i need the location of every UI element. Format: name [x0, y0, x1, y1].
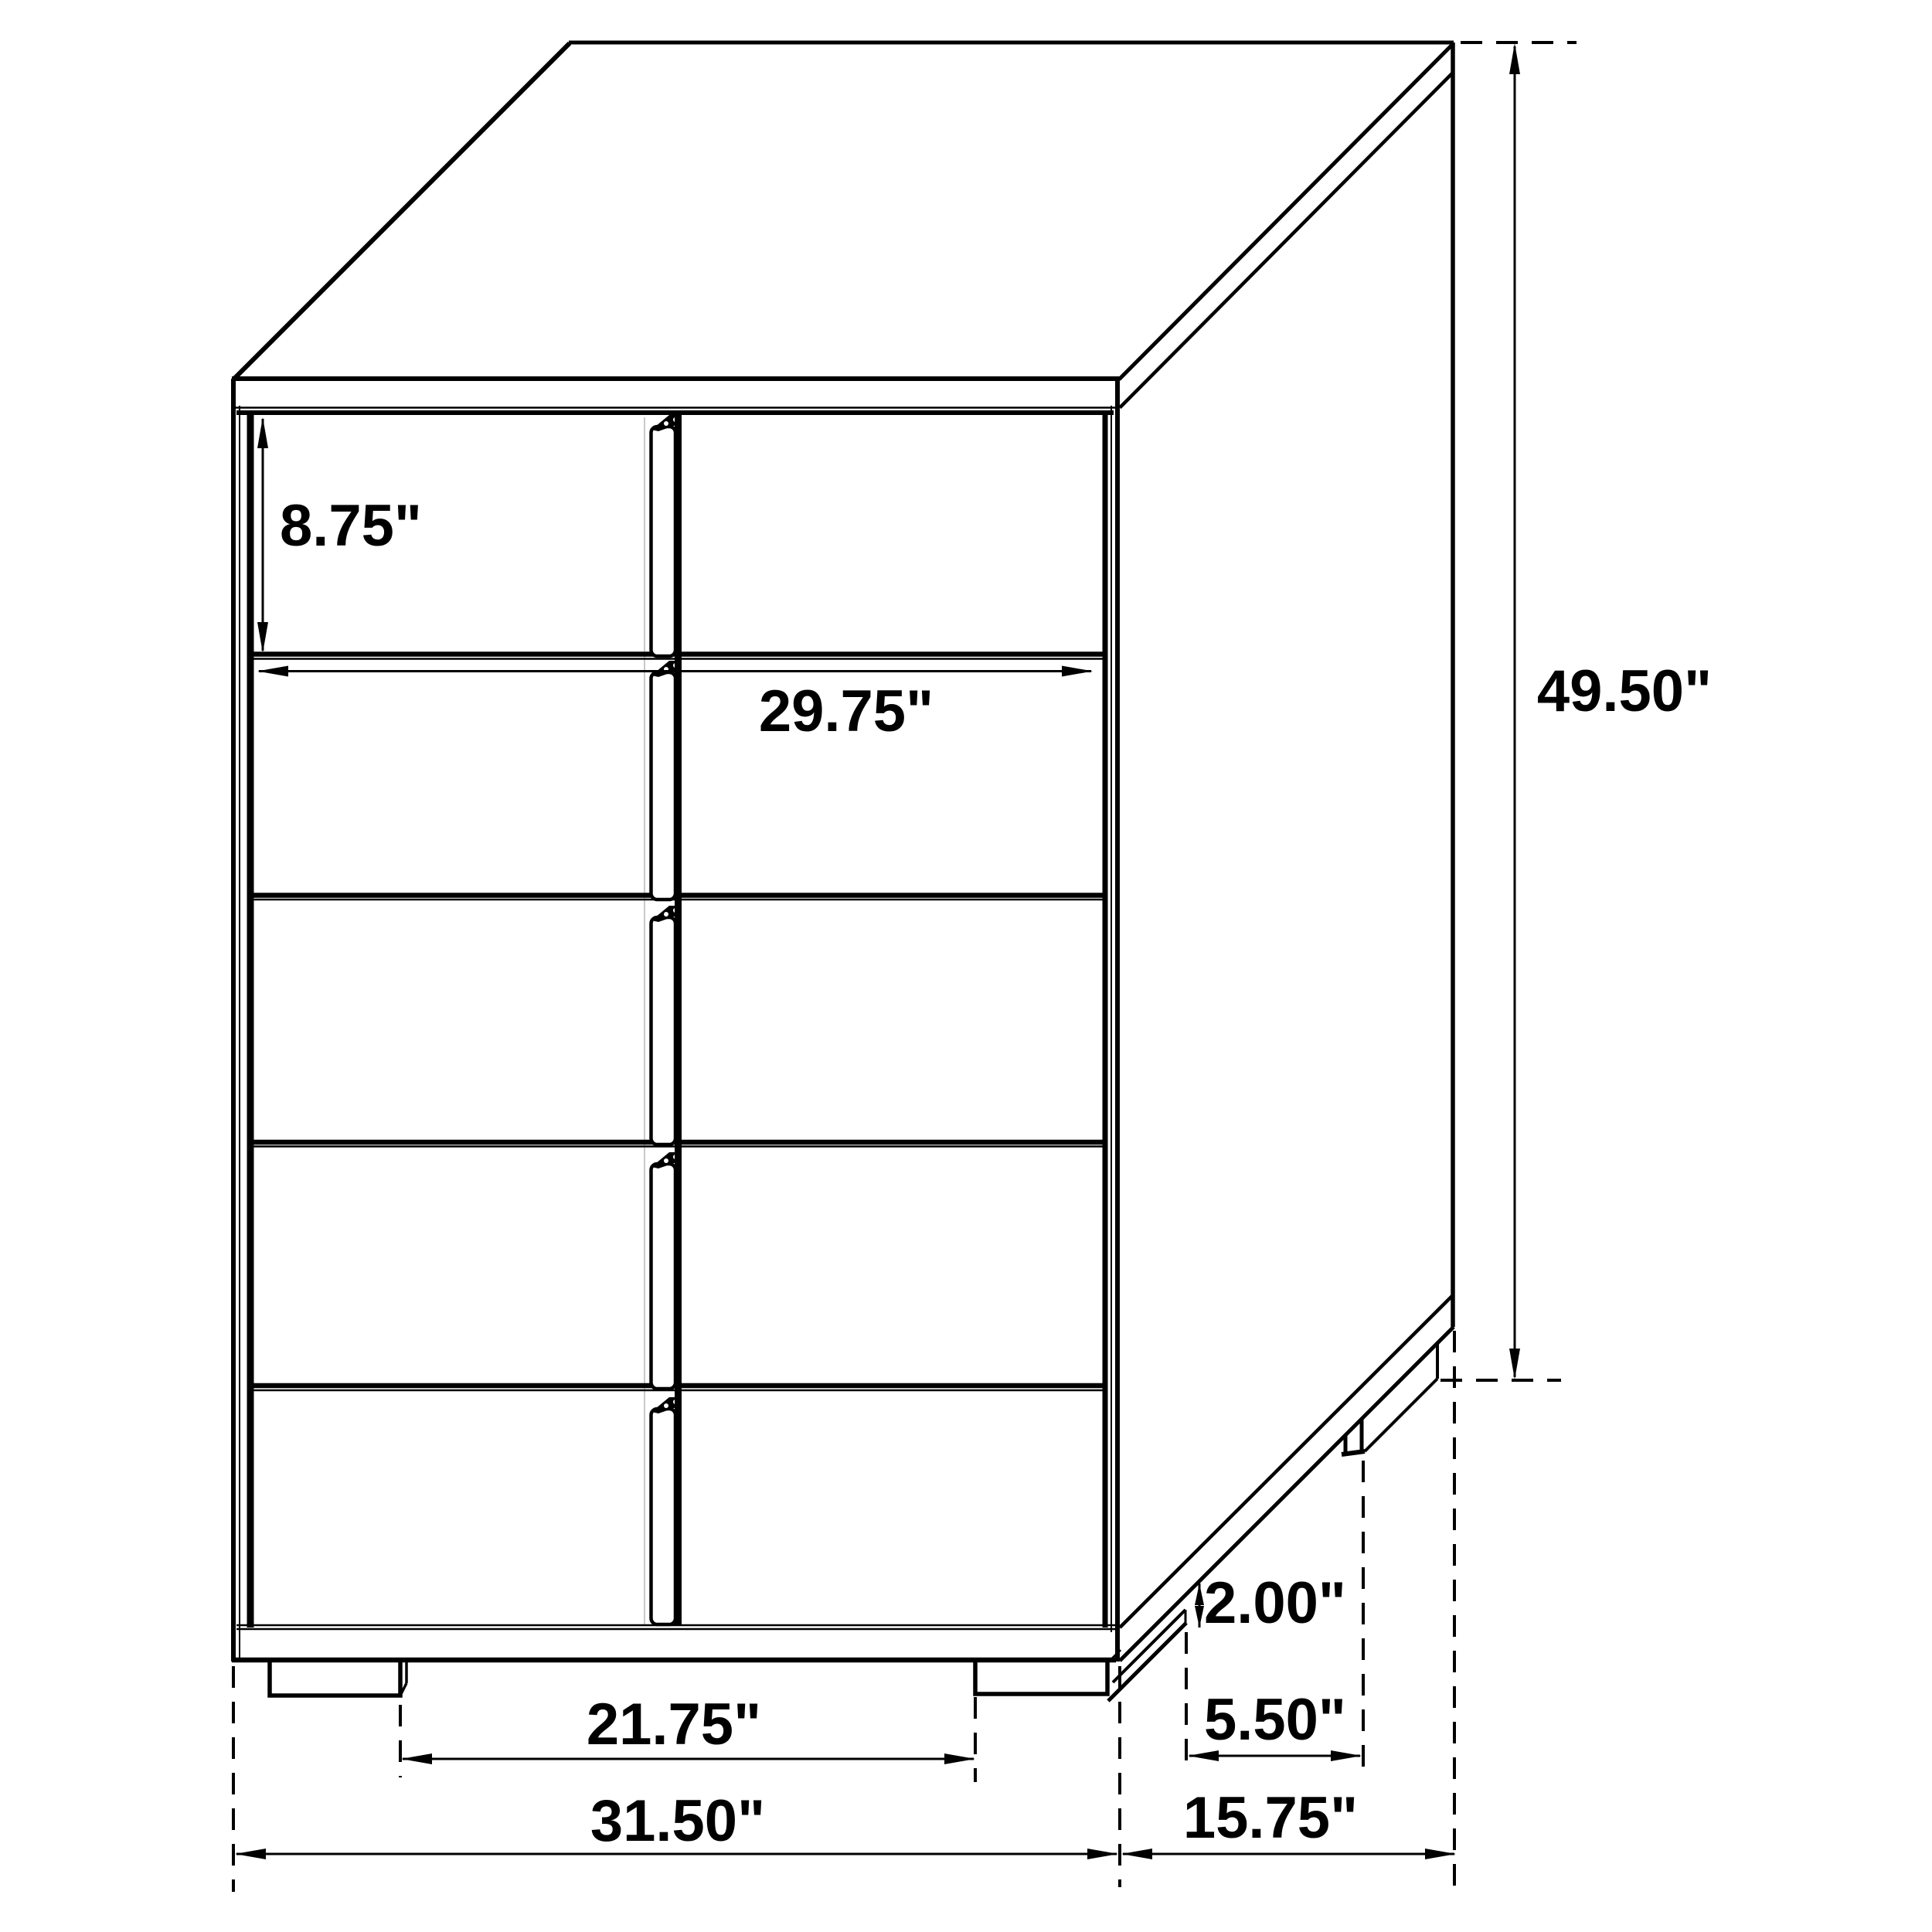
svg-text:49.50": 49.50" [1537, 658, 1712, 724]
svg-text:21.75": 21.75" [587, 1692, 761, 1757]
svg-text:5.50": 5.50" [1204, 1687, 1346, 1753]
svg-text:15.75": 15.75" [1183, 1785, 1358, 1851]
svg-text:31.50": 31.50" [590, 1788, 765, 1854]
svg-text:8.75": 8.75" [280, 493, 422, 559]
svg-text:2.00": 2.00" [1204, 1570, 1346, 1636]
svg-text:29.75": 29.75" [759, 679, 934, 744]
